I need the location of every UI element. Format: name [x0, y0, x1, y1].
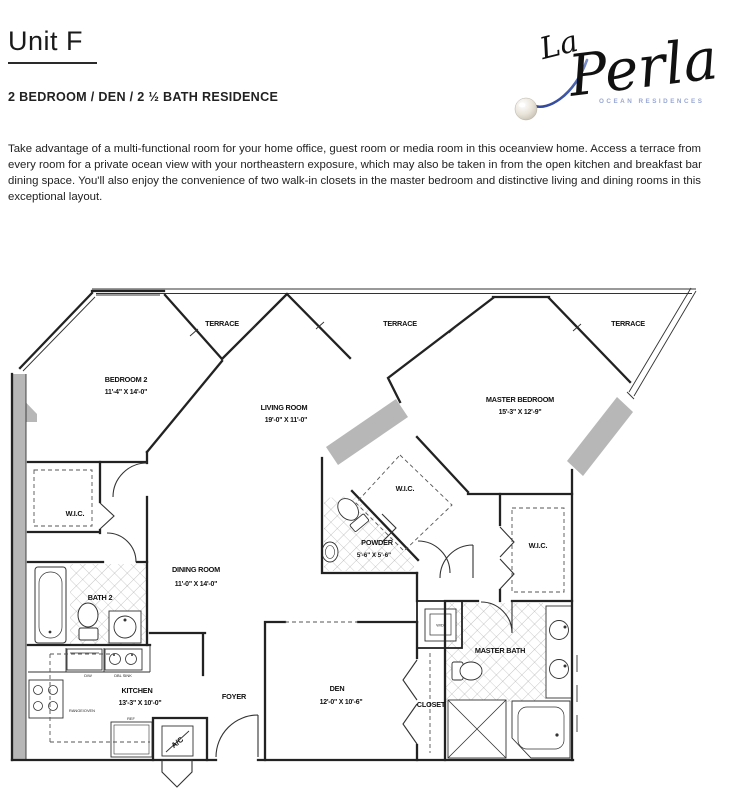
label-kitchen: KITCHEN	[121, 686, 152, 695]
label-terrace-1: TERRACE	[205, 319, 239, 328]
dims-dining: 11'-0" X 14'-0"	[175, 581, 217, 588]
label-dbl-sink: DBL SINK	[114, 673, 132, 678]
label-powder: POWDER	[361, 538, 394, 547]
dims-bedroom2: 11'-4" X 14'-0"	[105, 389, 147, 396]
logo-tagline: OCEAN RESIDENCES	[599, 98, 704, 105]
label-wic-center: W.I.C.	[396, 484, 415, 493]
floor-plan: TERRACE TERRACE TERRACE BEDROOM 2 11'-4"…	[0, 270, 732, 790]
la-perla-logo: La Perla OCEAN RESIDENCES	[495, 2, 723, 124]
label-wic-left: W.I.C.	[66, 509, 85, 518]
dims-master: 15'-3" X 12'-9"	[499, 409, 542, 416]
unit-description: Take advantage of a multi-functional roo…	[8, 142, 725, 206]
label-masterbath: MASTER BATH	[475, 646, 525, 655]
label-terrace-2: TERRACE	[383, 319, 417, 328]
label-dining: DINING ROOM	[172, 565, 220, 574]
dims-powder: 5'-6" X 5'-6"	[357, 552, 391, 559]
dims-living: 19'-0" X 11'-0"	[265, 417, 307, 424]
dims-kitchen: 13'-3" X 10'-0"	[119, 700, 162, 707]
label-range-oven: RANGE/OVEN	[69, 708, 95, 713]
label-closet: CLOSET	[417, 700, 446, 709]
label-wd: W/D	[436, 623, 444, 628]
label-dw: D/W	[84, 673, 92, 678]
label-bath2: BATH 2	[88, 593, 113, 602]
pearl-icon	[515, 98, 537, 120]
label-foyer: FOYER	[222, 692, 247, 701]
unit-subtitle: 2 BEDROOM / DEN / 2 ½ BATH RESIDENCE	[8, 90, 278, 104]
label-ref: REF	[127, 716, 135, 721]
page-title: Unit F	[8, 26, 97, 64]
label-den: DEN	[330, 684, 345, 693]
label-wic-right: W.I.C.	[529, 541, 548, 550]
brochure-page: Unit F 2 BEDROOM / DEN / 2 ½ BATH RESIDE…	[0, 0, 732, 790]
label-living: LIVING ROOM	[261, 403, 308, 412]
label-master: MASTER BEDROOM	[486, 395, 554, 404]
pearl-highlight	[519, 103, 526, 108]
label-terrace-3: TERRACE	[611, 319, 645, 328]
label-bedroom2: BEDROOM 2	[105, 375, 148, 384]
dims-den: 12'-0" X 10'-6"	[320, 699, 363, 706]
